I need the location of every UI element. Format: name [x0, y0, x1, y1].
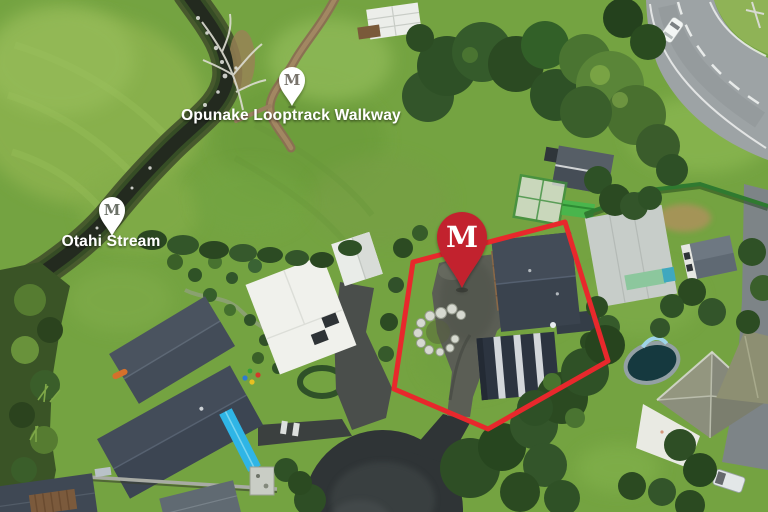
right-house [585, 205, 678, 307]
opunake-pin-letter: M [284, 71, 301, 89]
deck-spa [662, 267, 676, 283]
opunake-walkway-label: Opunake Looptrack Walkway [181, 107, 401, 124]
property-pin-letter: M [446, 220, 478, 254]
skylight [550, 322, 556, 328]
main-house-roof [491, 232, 580, 332]
aerial-photo: M M M Opunake Looptrack Walkway Otahi St… [0, 0, 768, 512]
otahi-pin-letter: M [104, 201, 121, 219]
small-outbuilding [250, 467, 274, 495]
greenhouse [514, 175, 567, 224]
otahi-stream-label: Otahi Stream [62, 233, 161, 250]
